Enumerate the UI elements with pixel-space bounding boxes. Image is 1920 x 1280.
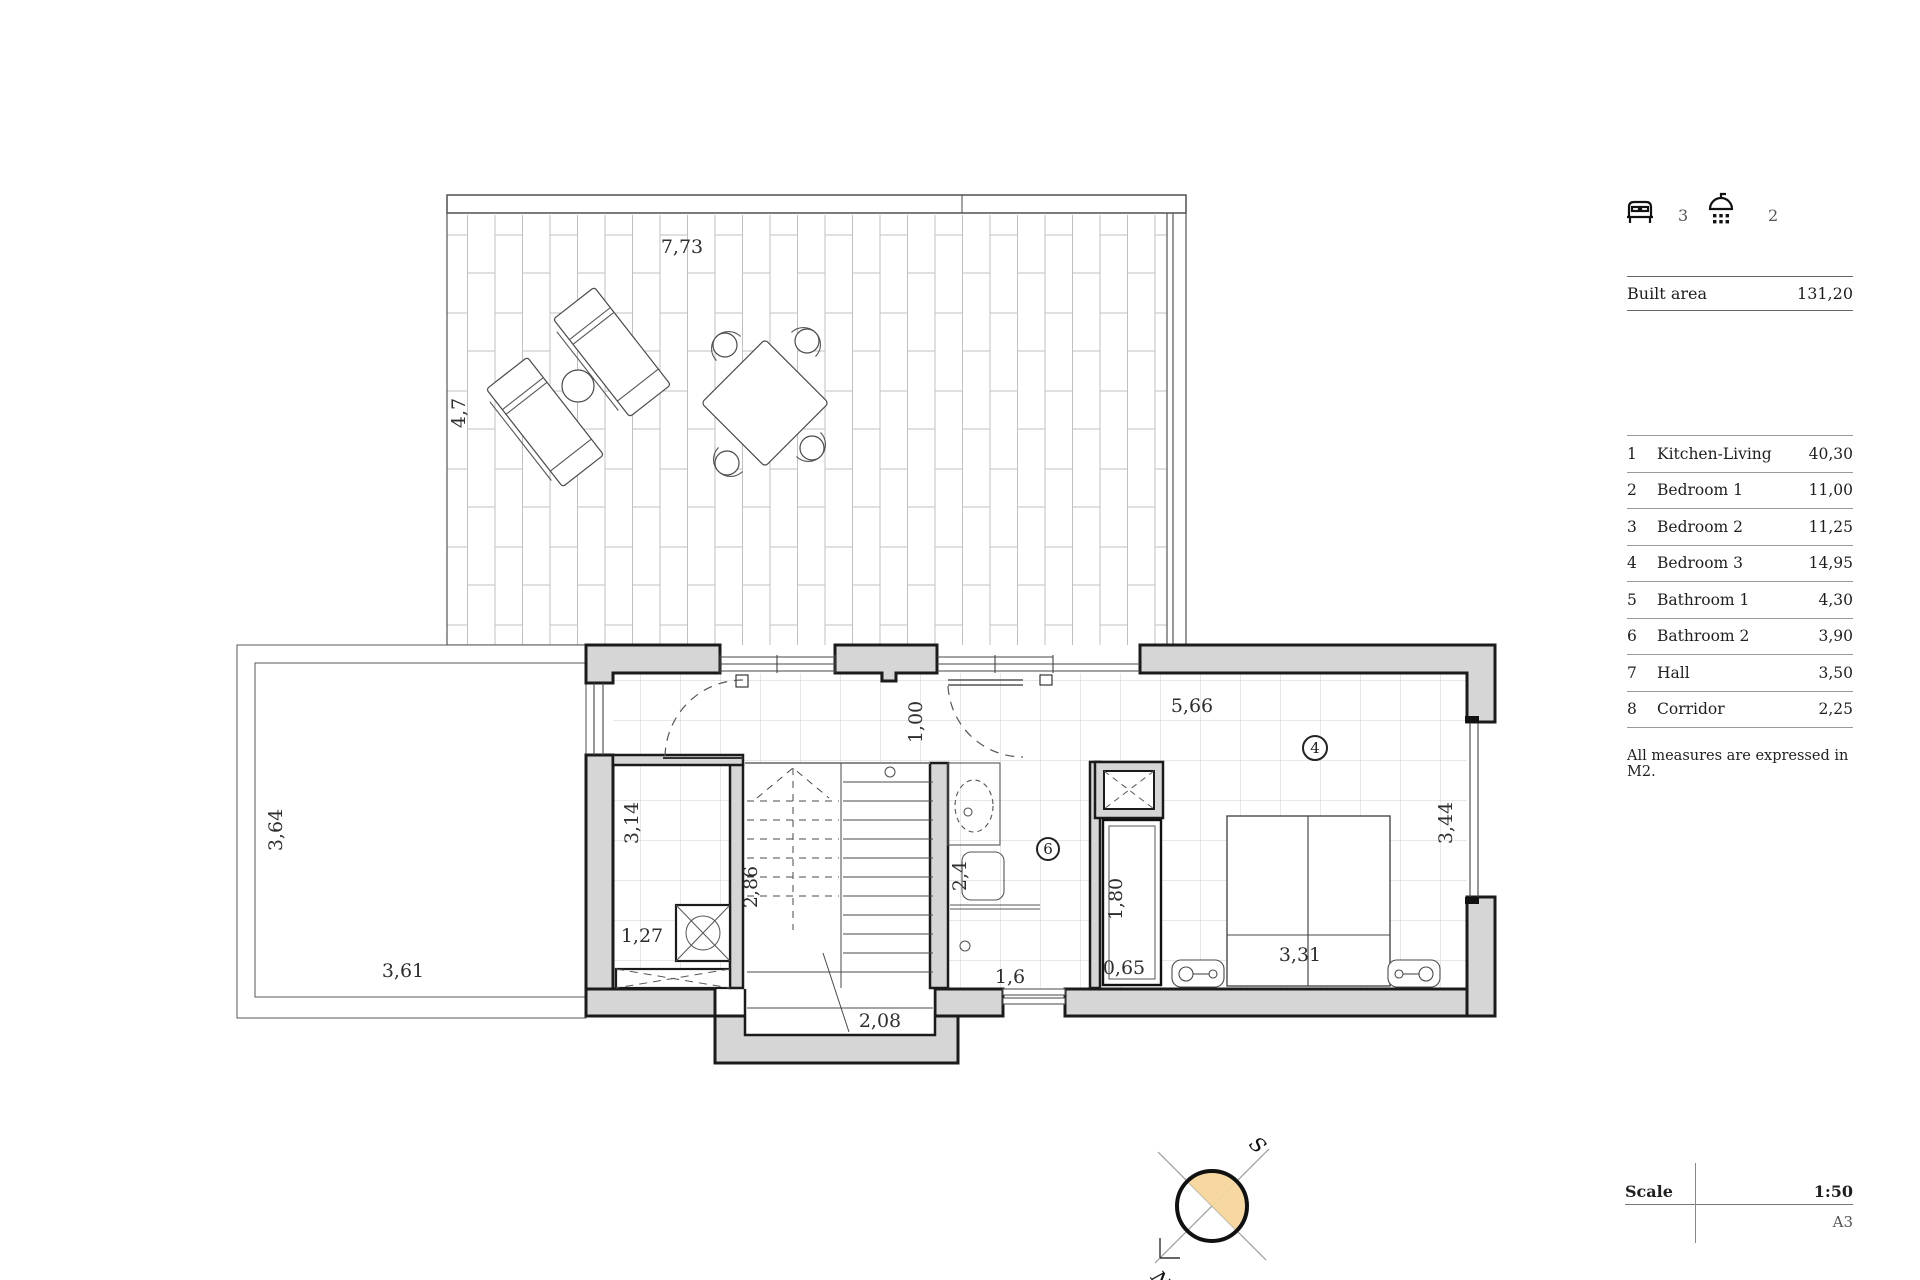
built-area-value: 131,20 bbox=[1797, 284, 1853, 303]
sliding-door-1 bbox=[720, 655, 835, 673]
scale-divider-line bbox=[1695, 1163, 1696, 1243]
scale-label: Scale bbox=[1625, 1182, 1673, 1201]
shower-icon bbox=[1710, 194, 1732, 223]
marker-bedroom3: 4 bbox=[1310, 739, 1320, 757]
hall-closet-wall bbox=[613, 755, 743, 765]
table-row: 5 Bathroom 1 4,30 bbox=[1627, 582, 1853, 619]
room-number: 7 bbox=[1627, 664, 1657, 682]
room-number: 2 bbox=[1627, 481, 1657, 499]
dim-wc-depth: 2,4 bbox=[949, 861, 971, 891]
dim-patio-depth: 3,64 bbox=[265, 809, 287, 851]
dim-shower-width: 1,6 bbox=[995, 966, 1025, 988]
built-area-label: Built area bbox=[1627, 284, 1707, 303]
room-area: 11,25 bbox=[1809, 518, 1853, 536]
dim-hall-depth: 3,14 bbox=[621, 802, 643, 844]
room-area: 3,90 bbox=[1818, 627, 1853, 645]
south-wall-left bbox=[586, 989, 715, 1016]
floor-plan-sheet: 4 6 7,73 4,7 3,64 3,61 3,14 1,27 2,86 2,… bbox=[0, 0, 1920, 1280]
table-row: 6 Bathroom 2 3,90 bbox=[1627, 619, 1853, 656]
scale-row: Scale 1:50 bbox=[1625, 1178, 1853, 1205]
compass-north-label: N bbox=[1146, 1265, 1177, 1280]
room-name: Bathroom 1 bbox=[1657, 591, 1818, 609]
dim-corridor-width: 5,66 bbox=[1171, 695, 1213, 717]
room-number: 4 bbox=[1627, 554, 1657, 572]
table-row: 3 Bedroom 2 11,25 bbox=[1627, 509, 1853, 546]
bathrooms-count: 2 bbox=[1768, 206, 1778, 225]
dim-bed-width: 3,31 bbox=[1279, 944, 1321, 966]
bathroom-door-threshold bbox=[1003, 989, 1065, 1004]
east-wall-lower bbox=[1467, 897, 1495, 1016]
room-name: Bedroom 2 bbox=[1657, 518, 1809, 536]
bed-icon bbox=[1627, 202, 1653, 223]
room-name: Kitchen-Living bbox=[1657, 445, 1809, 463]
dim-closet-width: 1,27 bbox=[621, 925, 663, 947]
table-row: 1 Kitchen-Living 40,30 bbox=[1627, 436, 1853, 473]
compass-rose: N S bbox=[1146, 1132, 1272, 1280]
dim-wardrobe-width: 0,65 bbox=[1103, 957, 1145, 979]
room-number: 3 bbox=[1627, 518, 1657, 536]
room-area: 40,30 bbox=[1809, 445, 1853, 463]
room-number: 6 bbox=[1627, 627, 1657, 645]
sheet-size: A3 bbox=[1625, 1213, 1853, 1231]
nightstand-right bbox=[1388, 960, 1440, 987]
room-name: Hall bbox=[1657, 664, 1818, 682]
south-wall-right bbox=[1065, 989, 1495, 1016]
table-row: 7 Hall 3,50 bbox=[1627, 655, 1853, 692]
room-area: 11,00 bbox=[1809, 481, 1853, 499]
measures-note: All measures are expressed in M2. bbox=[1627, 748, 1867, 780]
west-wall bbox=[586, 755, 613, 991]
sliding-door-2 bbox=[937, 655, 1140, 673]
terrace-top-band bbox=[447, 195, 1186, 213]
stair-treads-solid bbox=[843, 782, 933, 953]
south-wall-mid bbox=[935, 989, 1003, 1016]
room-name: Bedroom 1 bbox=[1657, 481, 1809, 499]
table-row: 2 Bedroom 1 11,00 bbox=[1627, 473, 1853, 510]
room-number: 8 bbox=[1627, 700, 1657, 718]
marker-bathroom2: 6 bbox=[1043, 840, 1053, 858]
dim-stair-width: 2,08 bbox=[859, 1010, 901, 1032]
nightstand-left bbox=[1172, 960, 1224, 987]
window-east bbox=[1465, 716, 1479, 904]
table-row: 4 Bedroom 3 14,95 bbox=[1627, 546, 1853, 583]
room-number: 5 bbox=[1627, 591, 1657, 609]
room-area: 14,95 bbox=[1809, 554, 1853, 572]
window-west bbox=[594, 683, 603, 755]
room-name: Bathroom 2 bbox=[1657, 627, 1818, 645]
dim-terrace-depth: 4,7 bbox=[448, 398, 470, 428]
bedrooms-count: 3 bbox=[1678, 206, 1688, 225]
built-area-row: Built area 131,20 bbox=[1627, 276, 1853, 311]
room-area: 3,50 bbox=[1818, 664, 1853, 682]
room-name: Corridor bbox=[1657, 700, 1818, 718]
dining-set bbox=[701, 320, 832, 483]
scale-value: 1:50 bbox=[1814, 1182, 1853, 1201]
room-area: 4,30 bbox=[1818, 591, 1853, 609]
stair-right-wall bbox=[930, 763, 948, 988]
room-name: Bedroom 3 bbox=[1657, 554, 1809, 572]
side-table bbox=[562, 370, 594, 402]
dim-terrace-width: 7,73 bbox=[661, 236, 703, 258]
dim-door-width: 1,00 bbox=[905, 701, 927, 743]
rooms-table: 1 Kitchen-Living 40,30 2 Bedroom 1 11,00… bbox=[1627, 435, 1853, 728]
dim-wardrobe-depth: 1,80 bbox=[1105, 878, 1127, 920]
table-row: 8 Corridor 2,25 bbox=[1627, 692, 1853, 729]
room-number: 1 bbox=[1627, 445, 1657, 463]
compass-south-label: S bbox=[1244, 1132, 1271, 1159]
dim-bedroom-depth: 3,44 bbox=[1435, 802, 1457, 844]
dim-stair-depth: 2,86 bbox=[740, 866, 762, 908]
dim-patio-width: 3,61 bbox=[382, 960, 424, 982]
room-area: 2,25 bbox=[1818, 700, 1853, 718]
